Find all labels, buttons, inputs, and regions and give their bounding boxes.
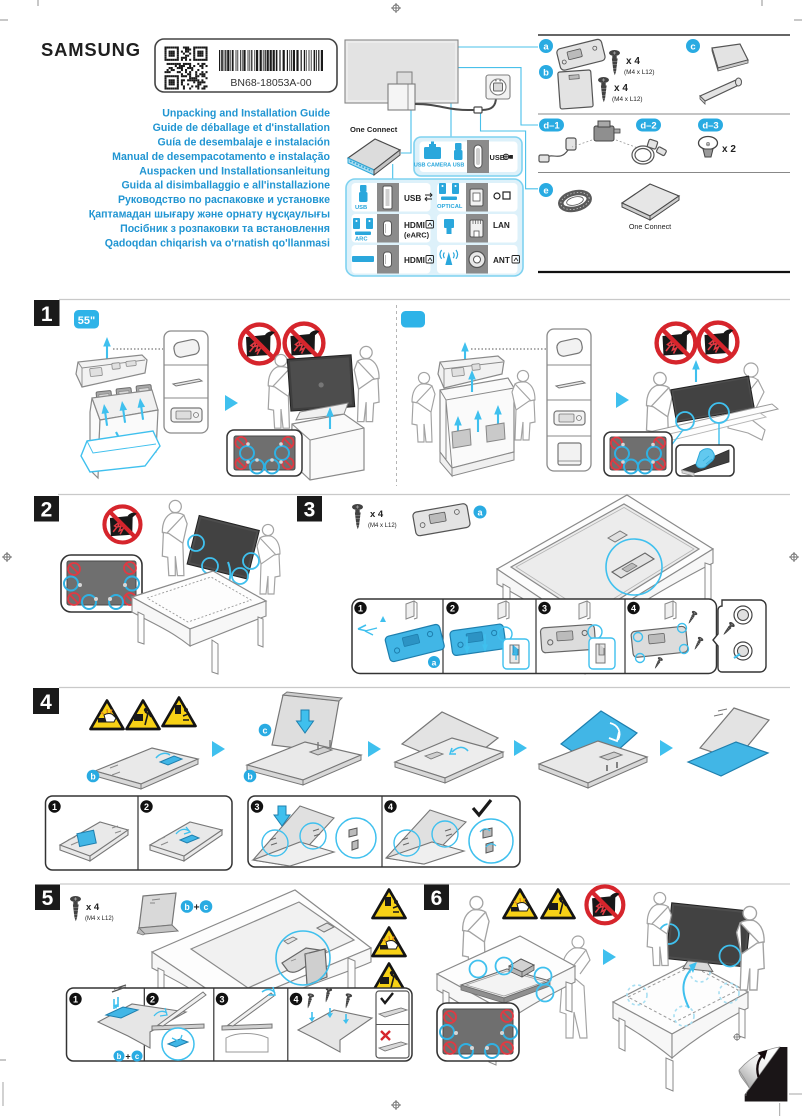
svg-text:Посібник з розпаковки та встан: Посібник з розпаковки та встановлення xyxy=(120,223,330,235)
svg-text:c: c xyxy=(204,902,209,912)
svg-text:3: 3 xyxy=(542,604,547,614)
svg-text:a: a xyxy=(543,42,549,53)
svg-text:(M4 x L12): (M4 x L12) xyxy=(368,523,397,529)
svg-text:3: 3 xyxy=(304,499,316,522)
svg-text:One Connect: One Connect xyxy=(350,125,398,134)
svg-text:3: 3 xyxy=(219,995,224,1005)
svg-text:(M4 x L12): (M4 x L12) xyxy=(612,96,643,103)
svg-text:USB: USB xyxy=(404,194,421,203)
svg-text:1: 1 xyxy=(358,604,363,614)
svg-text:4: 4 xyxy=(293,995,298,1005)
svg-text:Руководство по распаковке и ус: Руководство по распаковке и установке xyxy=(118,194,330,206)
svg-text:d–1: d–1 xyxy=(543,121,560,132)
svg-text:⊕: ⊕ xyxy=(705,142,710,148)
svg-text:(M4 x L12): (M4 x L12) xyxy=(624,69,655,76)
svg-text:x 4: x 4 xyxy=(370,509,384,520)
svg-text:+: + xyxy=(194,903,200,914)
svg-text:x 2: x 2 xyxy=(722,144,736,155)
svg-text:LAN: LAN xyxy=(493,221,510,230)
svg-text:2: 2 xyxy=(41,499,53,522)
svg-text:OPTICAL: OPTICAL xyxy=(437,204,463,210)
svg-text:4: 4 xyxy=(388,802,393,812)
svg-text:e: e xyxy=(543,186,548,197)
svg-text:SAMSUNG: SAMSUNG xyxy=(41,39,141,60)
svg-text:One Connect: One Connect xyxy=(629,222,671,231)
svg-text:Unpacking and Installation Gui: Unpacking and Installation Guide xyxy=(162,108,330,120)
svg-text:USB CAMERA: USB CAMERA xyxy=(414,163,451,169)
svg-text:4: 4 xyxy=(40,691,52,714)
svg-text:d–3: d–3 xyxy=(702,121,718,132)
svg-text:5: 5 xyxy=(42,887,54,910)
svg-text:b: b xyxy=(117,1052,122,1061)
svg-text:b: b xyxy=(543,68,549,79)
svg-text:2: 2 xyxy=(150,995,155,1005)
svg-text:x 4: x 4 xyxy=(626,56,640,67)
svg-text:Guide de déballage et d'instal: Guide de déballage et d'installation xyxy=(153,122,330,134)
svg-text:b: b xyxy=(184,902,190,912)
svg-text:BN68-18053A-00: BN68-18053A-00 xyxy=(230,77,311,89)
svg-text:4: 4 xyxy=(631,604,636,614)
svg-text:Qadoqdan chiqarish va o'rnatis: Qadoqdan chiqarish va o'rnatish qo'llanm… xyxy=(105,238,330,250)
svg-text:x 4: x 4 xyxy=(614,83,628,94)
svg-text:Guida al disimballaggio e all': Guida al disimballaggio e all'installazi… xyxy=(121,180,330,192)
svg-text:1: 1 xyxy=(73,995,78,1005)
svg-text:2: 2 xyxy=(450,604,455,614)
svg-text:c: c xyxy=(690,42,695,53)
svg-text:ANT: ANT xyxy=(493,256,510,265)
svg-text:(eARC): (eARC) xyxy=(404,231,430,240)
svg-text:d–2: d–2 xyxy=(640,121,656,132)
svg-text:2: 2 xyxy=(144,802,149,812)
svg-text:6: 6 xyxy=(431,887,443,910)
svg-text:Auspacken und Installationsanl: Auspacken und Installationsanleitung xyxy=(139,165,330,177)
svg-text:b: b xyxy=(247,772,253,782)
svg-text:HDMI: HDMI xyxy=(404,256,425,265)
svg-text:x 4: x 4 xyxy=(86,902,100,913)
svg-text:(M4 x L12): (M4 x L12) xyxy=(85,916,114,922)
svg-text:c: c xyxy=(135,1052,140,1061)
svg-text:3: 3 xyxy=(254,802,259,812)
svg-text:a: a xyxy=(432,657,437,667)
svg-text:+: + xyxy=(125,1052,130,1062)
svg-text:c: c xyxy=(263,726,268,736)
svg-text:USB: USB xyxy=(453,163,465,169)
svg-text:USB: USB xyxy=(490,153,506,162)
svg-text:USB: USB xyxy=(355,205,367,211)
svg-text:1: 1 xyxy=(41,303,53,326)
svg-text:55": 55" xyxy=(78,315,95,327)
svg-text:Қаптамадан шығару және орнату: Қаптамадан шығару және орнату нұсқаулығы xyxy=(89,209,330,221)
svg-text:Manual de desempacotamento e i: Manual de desempacotamento e instalação xyxy=(112,151,330,163)
svg-text:HDMI: HDMI xyxy=(404,221,425,230)
svg-text:Guía de desembalaje e instalac: Guía de desembalaje e instalación xyxy=(157,136,330,148)
svg-text:1: 1 xyxy=(52,802,57,812)
svg-text:b: b xyxy=(90,772,96,782)
svg-text:ARC: ARC xyxy=(355,237,368,243)
